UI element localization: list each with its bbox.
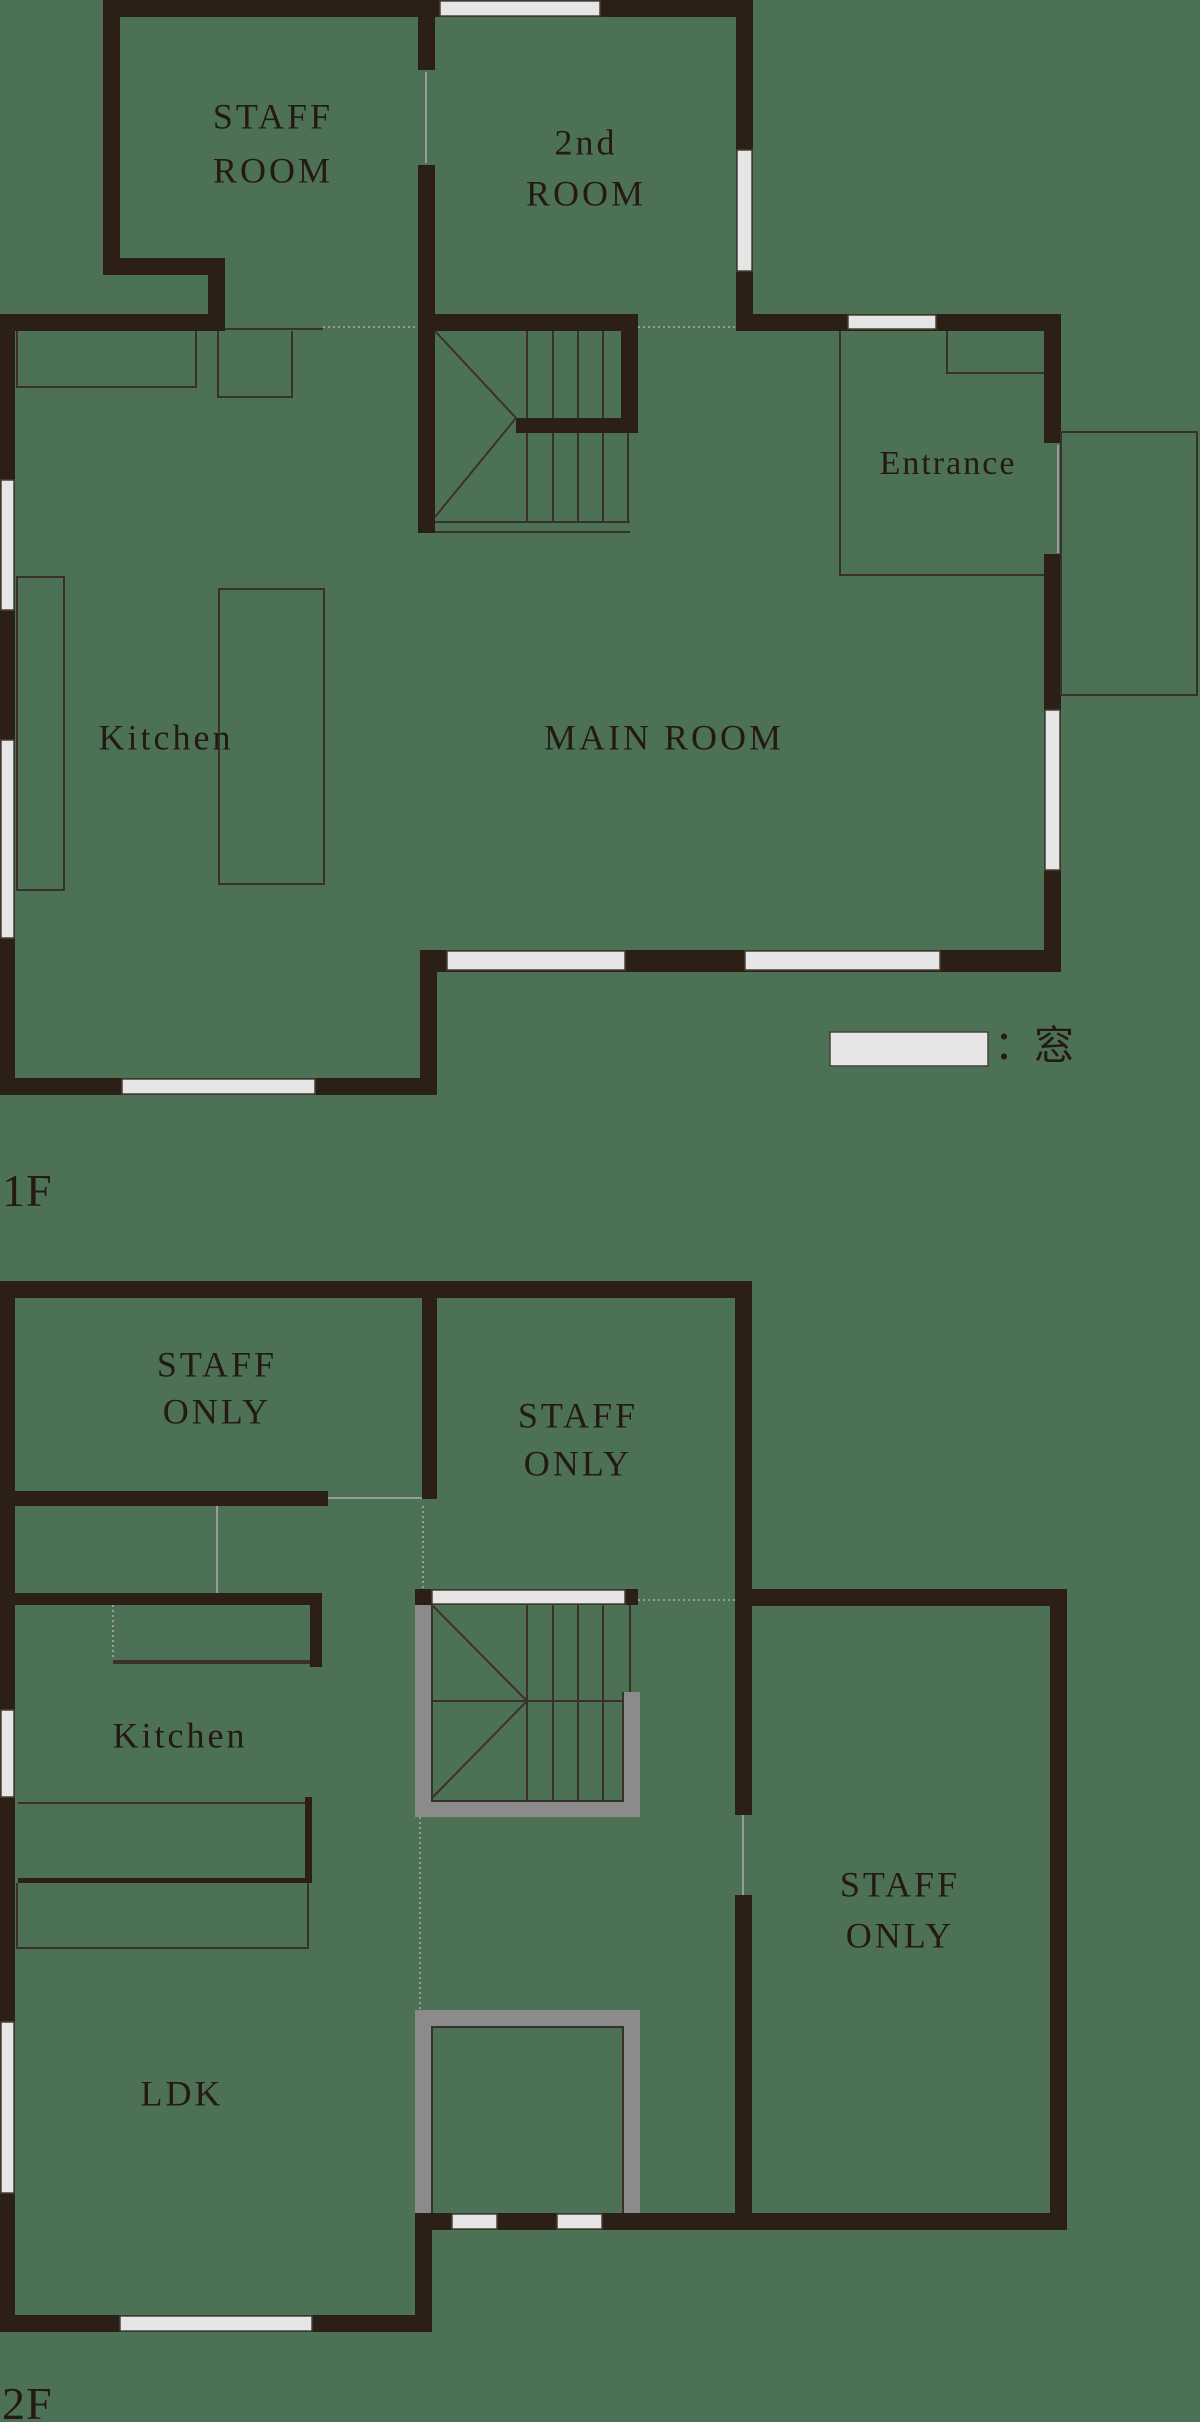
- wall-1f-top: [105, 0, 753, 17]
- wall-2f-right-outer: [1050, 1589, 1067, 2230]
- void-2f-gray-left: [415, 2010, 432, 2213]
- stairs-2f-gray-left: [415, 1605, 432, 1817]
- wall-1f-divider-stairs-left: [418, 165, 435, 533]
- wall-1f-divider-upper: [418, 17, 435, 70]
- wall-2f-right-section-top: [735, 1589, 1067, 1606]
- wall-2f-divider-rooms: [422, 1298, 437, 1499]
- label-staff-room-line1: STAFF: [213, 96, 333, 136]
- window-1f-south-left: [122, 1079, 315, 1094]
- label-main-room: MAIN ROOM: [544, 717, 784, 757]
- stairs-2f-gray-right: [623, 1692, 640, 1817]
- window-1f-south-b: [745, 951, 940, 970]
- window-1f-entrance-top: [848, 315, 936, 329]
- wall-1f-step-horizontal: [103, 258, 225, 275]
- background: [0, 0, 1200, 2422]
- wall-2f-south-step: [415, 2213, 432, 2332]
- label-kitchen-1f: Kitchen: [99, 717, 234, 757]
- wall-2f-top: [0, 1281, 752, 1298]
- legend-window-swatch: [830, 1032, 988, 1066]
- wall-1f-staffroom-left: [103, 0, 120, 275]
- wall-2f-kitchen-strip: [15, 1593, 322, 1605]
- label-staffonly1-line2: ONLY: [163, 1391, 271, 1431]
- window-1f-west-a: [1, 480, 14, 610]
- window-1f-top: [440, 1, 600, 16]
- wall-2f-bottom-center: [415, 2213, 1067, 2230]
- legend-window-label: ：窓: [994, 1023, 1074, 1068]
- void-2f-gray-right: [623, 2010, 640, 2213]
- wall-1f-stairs-right: [621, 331, 638, 433]
- window-2f-south-b: [557, 2214, 602, 2229]
- label-staff-room-line2: ROOM: [213, 150, 333, 190]
- void-2f-gray-top: [415, 2010, 640, 2027]
- label-second-room-line2: ROOM: [526, 173, 646, 213]
- window-2f-west-b: [1, 2022, 14, 2193]
- wall-1f-south-step: [420, 950, 437, 1095]
- label-floor-1f: 1F: [2, 1165, 53, 1216]
- window-1f-right: [1045, 710, 1060, 870]
- window-1f-west-b: [1, 740, 14, 938]
- label-ldk: LDK: [141, 2073, 224, 2113]
- wall-2f-staffonly1-bottom: [0, 1491, 328, 1506]
- wall-1f-stairs-top: [418, 314, 638, 331]
- label-kitchen-2f: Kitchen: [113, 1715, 248, 1755]
- label-staffonly1-line1: STAFF: [157, 1344, 277, 1384]
- wall-2f-spine-upper: [735, 1281, 752, 1815]
- wall-1f-right-upper: [1044, 314, 1061, 443]
- counter-2f-bottom-thick: [18, 1878, 312, 1883]
- label-staffonly2-line2: ONLY: [524, 1443, 632, 1483]
- label-second-room-line1: 2nd: [555, 122, 618, 162]
- label-entrance: Entrance: [880, 445, 1017, 482]
- window-1f-south-a: [447, 951, 625, 970]
- window-2f-west-a: [1, 1710, 14, 1797]
- floorplan-canvas: STAFF ROOM 2nd ROOM Entrance Kitchen MAI…: [0, 0, 1200, 2422]
- window-2f-south-a: [452, 2214, 497, 2229]
- closet-2f-right-thick: [310, 1593, 322, 1667]
- window-2f-stairs-top: [432, 1590, 625, 1604]
- stairs-2f-gray-bottom: [415, 1801, 640, 1817]
- wall-1f-left-outer: [0, 314, 15, 1095]
- label-staffonly3-line1: STAFF: [840, 1864, 960, 1904]
- window-2f-south-left: [120, 2316, 312, 2331]
- label-staffonly3-line2: ONLY: [846, 1915, 954, 1955]
- window-1f-secondroom: [737, 150, 752, 271]
- label-staffonly2-line1: STAFF: [518, 1395, 638, 1435]
- wall-1f-step-vertical: [208, 258, 225, 315]
- wall-1f-stairs-landing: [516, 418, 638, 433]
- wall-1f-kitchen-top: [0, 314, 225, 331]
- wall-2f-spine-lower: [735, 1895, 752, 2213]
- label-floor-2f: 2F: [2, 2378, 53, 2422]
- counter-2f-right-thick: [305, 1797, 312, 1883]
